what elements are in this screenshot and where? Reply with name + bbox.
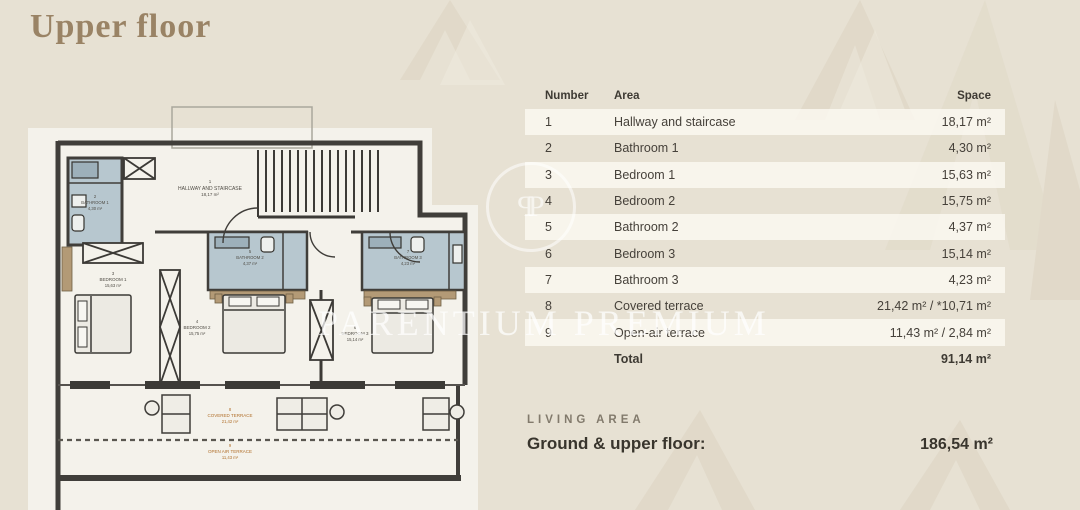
- svg-text:BEDROOM 2: BEDROOM 2: [183, 325, 211, 330]
- svg-text:11,43 m²: 11,43 m²: [222, 455, 239, 460]
- cell-space: 11,43 m² / 2,84 m²: [816, 326, 1005, 340]
- svg-text:OPEN AIR TERRACE: OPEN AIR TERRACE: [208, 449, 252, 454]
- svg-text:BATHROOM 1: BATHROOM 1: [81, 200, 109, 205]
- table-row: 2 Bathroom 1 4,30 m²: [525, 135, 1005, 161]
- cell-area: Open-air terrace: [600, 326, 816, 340]
- cell-number: 2: [525, 141, 600, 155]
- total-label: Total: [600, 352, 816, 366]
- living-area-summary: LIVING AREA Ground & upper floor: 186,54…: [527, 414, 1005, 454]
- cell-area: Covered terrace: [600, 299, 816, 313]
- table-row: 1 Hallway and staircase 18,17 m²: [525, 109, 1005, 135]
- svg-text:BATHROOM 3: BATHROOM 3: [394, 255, 422, 260]
- total-value: 91,14 m²: [816, 352, 1005, 366]
- table-header-row: Number Area Space: [525, 82, 1005, 109]
- svg-text:4,37 m²: 4,37 m²: [243, 261, 258, 266]
- table-total-row: Total 91,14 m²: [525, 346, 1005, 372]
- cell-space: 15,75 m²: [816, 194, 1005, 208]
- cell-space: 18,17 m²: [816, 115, 1005, 129]
- cell-area: Bathroom 2: [600, 220, 816, 234]
- cell-number: 1: [525, 115, 600, 129]
- page-title: Upper floor: [30, 8, 211, 46]
- cell-space: 4,37 m²: [816, 220, 1005, 234]
- svg-text:15,14 m²: 15,14 m²: [347, 337, 364, 342]
- cell-area: Bedroom 1: [600, 168, 816, 182]
- cell-number: 8: [525, 299, 600, 313]
- svg-text:4,30 m²: 4,30 m²: [88, 206, 103, 211]
- cell-space: 21,42 m² / *10,71 m²: [816, 299, 1005, 313]
- cell-number: 4: [525, 194, 600, 208]
- living-area-label: LIVING AREA: [527, 414, 1005, 426]
- table-row: 3 Bedroom 1 15,63 m²: [525, 162, 1005, 188]
- svg-text:15,75 m²: 15,75 m²: [189, 331, 206, 336]
- living-area-row-label: Ground & upper floor:: [527, 434, 705, 454]
- table-row: 7 Bathroom 3 4,23 m²: [525, 267, 1005, 293]
- svg-text:COVERED TERRACE: COVERED TERRACE: [208, 413, 253, 418]
- cell-area: Hallway and staircase: [600, 115, 816, 129]
- cell-number: 3: [525, 168, 600, 182]
- header-number: Number: [525, 90, 600, 102]
- cell-area: Bathroom 1: [600, 141, 816, 155]
- cell-area: Bedroom 3: [600, 247, 816, 261]
- svg-text:21,42 m²: 21,42 m²: [222, 419, 239, 424]
- header-area: Area: [600, 90, 816, 102]
- header-space: Space: [816, 90, 1005, 102]
- cell-area: Bedroom 2: [600, 194, 816, 208]
- living-area-value: 186,54 m²: [920, 436, 1005, 454]
- table-row: 9 Open-air terrace 11,43 m² / 2,84 m²: [525, 319, 1005, 345]
- table-row: 6 Bedroom 3 15,14 m²: [525, 240, 1005, 266]
- table-row: 4 Bedroom 2 15,75 m²: [525, 188, 1005, 214]
- cell-space: 4,23 m²: [816, 273, 1005, 287]
- svg-text:4,23 m²: 4,23 m²: [401, 261, 416, 266]
- cell-space: 15,14 m²: [816, 247, 1005, 261]
- cell-space: 4,30 m²: [816, 141, 1005, 155]
- table-row: 5 Bathroom 2 4,37 m²: [525, 214, 1005, 240]
- svg-text:BEDROOM 3: BEDROOM 3: [341, 331, 369, 336]
- brochure-page: Upper floor: [0, 0, 1080, 510]
- cell-number: 6: [525, 247, 600, 261]
- beds: [75, 295, 433, 353]
- cell-space: 15,63 m²: [816, 168, 1005, 182]
- cell-number: 7: [525, 273, 600, 287]
- cell-number: 5: [525, 220, 600, 234]
- svg-text:15,63 m²: 15,63 m²: [105, 283, 122, 288]
- floor-plan: 1 HALLWAY AND STAIRCASE 18,17 m² 2 BATHR…: [25, 95, 520, 510]
- cell-number: 9: [525, 326, 600, 340]
- cell-area: Bathroom 3: [600, 273, 816, 287]
- area-table: Number Area Space 1 Hallway and staircas…: [525, 82, 1005, 372]
- table-row: 8 Covered terrace 21,42 m² / *10,71 m²: [525, 293, 1005, 319]
- svg-text:BATHROOM 2: BATHROOM 2: [236, 255, 264, 260]
- svg-text:18,17 m²: 18,17 m²: [201, 192, 219, 197]
- svg-text:BEDROOM 1: BEDROOM 1: [99, 277, 127, 282]
